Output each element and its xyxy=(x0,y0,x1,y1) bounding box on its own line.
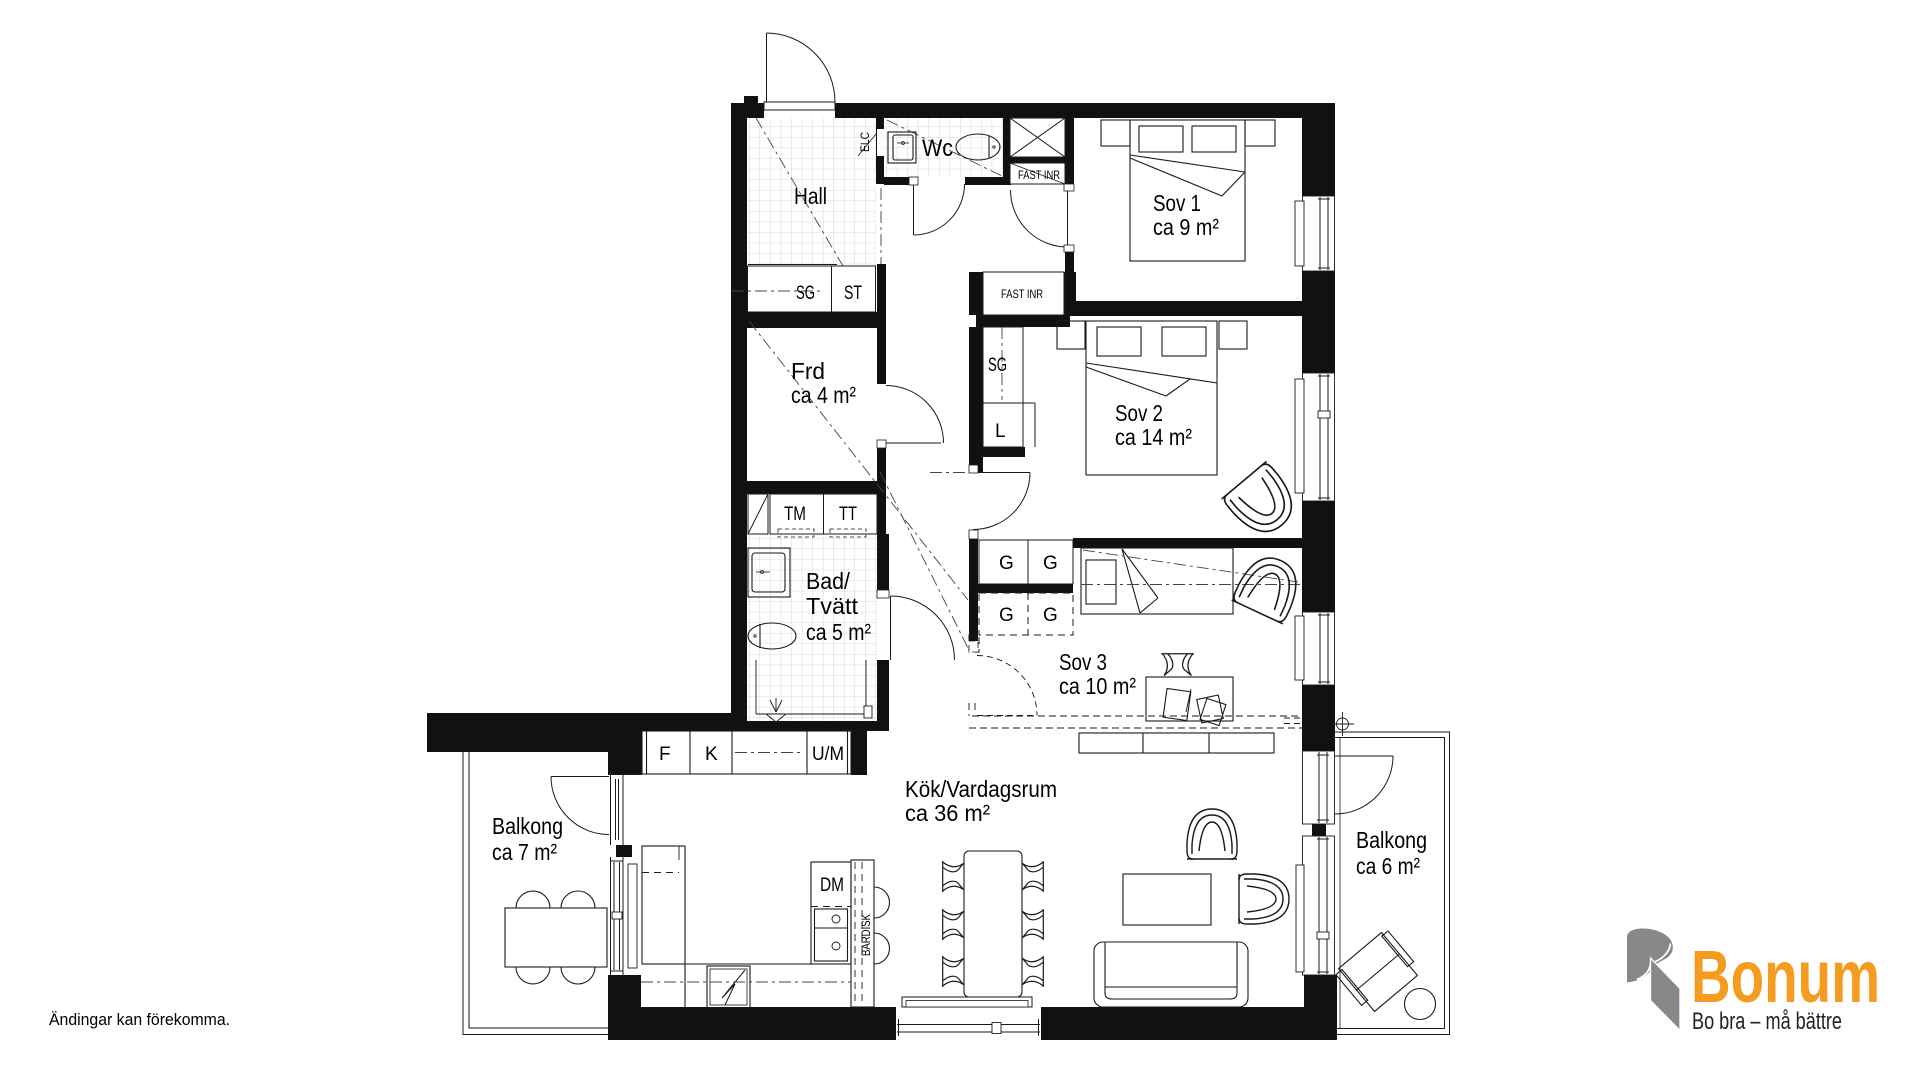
svg-text:K: K xyxy=(705,744,718,765)
svg-text:ca 6 m²: ca 6 m² xyxy=(1356,853,1420,879)
svg-text:L: L xyxy=(995,421,1006,442)
svg-text:ca 14 m²: ca 14 m² xyxy=(1115,424,1192,450)
svg-text:ca 36 m²: ca 36 m² xyxy=(905,800,990,826)
svg-text:DM: DM xyxy=(820,875,844,896)
svg-text:ca 4 m²: ca 4 m² xyxy=(791,382,856,408)
svg-text:Bo bra – må bättre: Bo bra – må bättre xyxy=(1692,1008,1842,1035)
svg-text:FAST INR: FAST INR xyxy=(1018,168,1060,182)
svg-text:Sov 3: Sov 3 xyxy=(1059,649,1107,675)
svg-text:Sov 1: Sov 1 xyxy=(1153,190,1201,216)
svg-text:G: G xyxy=(999,553,1014,574)
svg-text:G: G xyxy=(999,605,1014,626)
svg-text:G: G xyxy=(1043,605,1058,626)
svg-text:Kök/Vardagsrum: Kök/Vardagsrum xyxy=(905,776,1057,802)
svg-text:ca 10 m²: ca 10 m² xyxy=(1059,673,1136,699)
svg-text:F: F xyxy=(659,744,671,765)
svg-text:Sov 2: Sov 2 xyxy=(1115,400,1163,426)
svg-text:G: G xyxy=(1043,553,1058,574)
svg-text:TT: TT xyxy=(839,504,857,525)
svg-text:Tvätt: Tvätt xyxy=(806,593,859,619)
svg-text:ca 5 m²: ca 5 m² xyxy=(806,619,871,645)
svg-text:SG: SG xyxy=(796,283,815,304)
svg-text:SG: SG xyxy=(988,355,1007,376)
svg-text:ST: ST xyxy=(844,283,862,304)
svg-text:TM: TM xyxy=(784,504,806,525)
svg-text:Bonum: Bonum xyxy=(1691,935,1880,1018)
svg-text:Balkong: Balkong xyxy=(1356,827,1427,853)
svg-text:Balkong: Balkong xyxy=(492,813,563,839)
svg-text:BARDISK: BARDISK xyxy=(859,914,873,956)
svg-text:Wc: Wc xyxy=(922,135,953,162)
svg-text:U/M: U/M xyxy=(812,744,844,765)
svg-text:FAST INR: FAST INR xyxy=(1001,287,1043,301)
svg-text:Ändingar kan förekomma.: Ändingar kan förekomma. xyxy=(49,1010,230,1029)
svg-text:ca 7 m²: ca 7 m² xyxy=(492,839,557,865)
svg-text:Frd: Frd xyxy=(791,358,825,384)
svg-text:Bad/: Bad/ xyxy=(806,568,851,594)
svg-text:Hall: Hall xyxy=(794,183,827,209)
svg-text:ca 9 m²: ca 9 m² xyxy=(1153,214,1219,240)
